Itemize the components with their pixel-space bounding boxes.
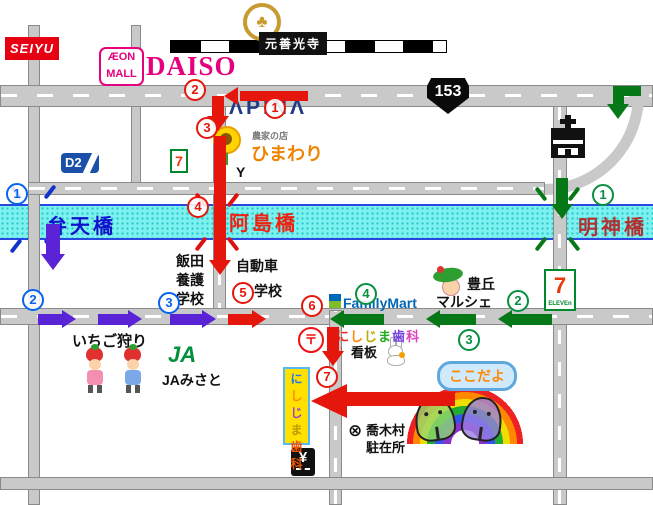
- sign-char: 歯: [290, 438, 302, 455]
- route-marker-green-1: 1: [592, 184, 614, 206]
- marche-label-bottom: マルシェ: [436, 292, 492, 312]
- route-marker-blue-1: 1: [6, 183, 28, 205]
- driving-school-line2: 学校: [254, 281, 282, 301]
- board-char: 歯: [392, 329, 406, 344]
- green-route-shaft: [440, 314, 476, 325]
- route-marker-green-4: 4: [355, 283, 377, 305]
- motozenkoji-label: 元善光寺: [259, 32, 327, 55]
- green-route-arrow-head-down: [551, 204, 573, 219]
- route-153-badge: 153: [427, 78, 469, 114]
- green-route-shaft: [512, 314, 552, 325]
- road-riverside: [28, 182, 545, 195]
- route-marker-red-3: 3: [196, 117, 218, 139]
- route-marker-red-7: 7: [316, 366, 338, 388]
- green-route-bridge-shaft: [556, 178, 568, 204]
- strawberry-kid-icon: [118, 347, 148, 393]
- green-route-arrow-head-left: [426, 310, 440, 328]
- route-marker-red-5: 5: [232, 282, 254, 304]
- red-final-arrow-shaft: [345, 392, 455, 406]
- red-route-long-shaft: [214, 136, 226, 260]
- route-marker-blue-3: 3: [158, 292, 180, 314]
- himawari-sign: ひまわり: [251, 140, 323, 166]
- familymart-sign: FamilyMart: [343, 295, 417, 311]
- bridge-bracket: [9, 238, 22, 253]
- ja-logo-icon: JA: [168, 342, 196, 368]
- iida-line3: 学校: [176, 290, 204, 309]
- red-route-east-shaft: [228, 314, 252, 325]
- purple-route-arrow-head-right: [62, 310, 76, 328]
- iida-line2: 養護: [176, 271, 204, 290]
- aeon-mall-sign: ÆON MALL: [99, 47, 144, 86]
- green-route-top-turn: [613, 86, 624, 104]
- route-marker-red-6: 6: [301, 295, 323, 317]
- sign-char: し: [290, 387, 302, 404]
- post-office-icon: 〒: [298, 327, 324, 353]
- clinic-board-name: にしじま歯科: [336, 326, 420, 345]
- ashima-bridge-label: 阿島橋: [229, 207, 298, 236]
- here-bubble: ここだよ: [437, 361, 517, 391]
- sign-char: に: [290, 370, 302, 387]
- road-dashes: [29, 187, 544, 190]
- ja-misato-label: JAみさと: [162, 370, 222, 390]
- purple-route-arrow-head-down: [41, 254, 65, 270]
- clinic-building-sign: に し じ ま 歯 科: [283, 367, 310, 445]
- seven-eleven-small-icon: 7: [170, 149, 188, 173]
- red-final-arrow-head: [311, 384, 347, 418]
- purple-route-arrow-head-right: [128, 310, 142, 328]
- route-marker-red-2: 2: [184, 79, 206, 101]
- red-route-arrow-head-left: [224, 87, 238, 105]
- green-route-shaft: [344, 314, 384, 325]
- aeon-top: ÆON: [101, 49, 142, 66]
- seven-eleven-big-icon: 7 ELEVEn: [544, 269, 576, 311]
- board-char: ま: [378, 329, 392, 344]
- iida-line1: 飯田: [176, 252, 204, 271]
- red-route-arrow-head-down: [209, 260, 231, 275]
- iida-school-label: 飯田 養護 学校: [176, 252, 204, 309]
- sign-char: じ: [290, 404, 302, 421]
- board-char: じ: [364, 329, 378, 344]
- d2-store-sign: D2: [61, 153, 99, 173]
- marche-label-top: 豊丘: [467, 274, 495, 294]
- road-bottom: [0, 477, 653, 490]
- board-char: し: [350, 329, 364, 344]
- familymart-flag-icon: [329, 294, 341, 308]
- red-route-arrow-head-right: [252, 310, 266, 328]
- access-map: ♣ 元善光寺 SEIYU ÆON MALL DAISO 153 ΛPINΛ 農家…: [0, 0, 653, 505]
- purple-route-bridge-shaft: [46, 224, 60, 254]
- red-route-turn-shaft: [212, 96, 224, 116]
- seven-big-eleven: ELEVEn: [546, 301, 574, 307]
- route-marker-green-3: 3: [458, 329, 480, 351]
- seiyu-sign: SEIYU: [5, 37, 59, 60]
- hospital-icon: [551, 115, 585, 161]
- aeon-bottom: MALL: [101, 66, 142, 83]
- police-line2: 駐在所: [366, 437, 405, 456]
- route-marker-blue-2: 2: [22, 289, 44, 311]
- green-route-arrow-head-down: [607, 104, 629, 119]
- d2-label: D2: [65, 155, 82, 170]
- purple-route-arrow-head-right: [202, 310, 216, 328]
- green-route-arrow-head-left: [330, 310, 344, 328]
- purple-route-shaft: [98, 314, 128, 325]
- route-marker-green-2: 2: [507, 290, 529, 312]
- green-route-arrow-head-left: [498, 310, 512, 328]
- purple-route-shaft: [38, 314, 62, 325]
- red-route-arrow-head-down: [322, 351, 344, 366]
- route-marker-red-4: 4: [187, 196, 209, 218]
- y-junction-mark: Y: [236, 164, 245, 180]
- sign-char: 科: [290, 455, 302, 472]
- route-marker-red-1: 1: [264, 97, 286, 119]
- driving-school-line1: 自動車: [236, 256, 278, 276]
- sign-char: ま: [290, 421, 302, 438]
- strawberry-kid-icon: [80, 347, 110, 393]
- seven-big-7: 7: [554, 273, 566, 298]
- purple-route-shaft: [170, 314, 202, 325]
- myojin-bridge-label: 明神橋: [578, 211, 647, 240]
- board-char: 科: [406, 329, 420, 344]
- d2-swoosh: [81, 153, 99, 173]
- police-box-icon: ⊗: [348, 421, 362, 441]
- daiso-sign: DAISO: [146, 51, 237, 82]
- red-route-south-shaft: [327, 327, 339, 351]
